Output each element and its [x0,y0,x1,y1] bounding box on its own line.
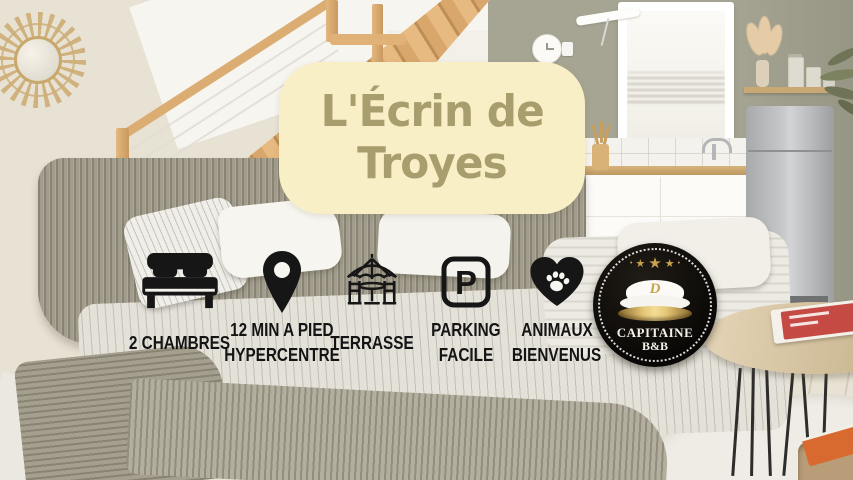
badge-monogram: D [593,281,717,298]
kitchen-window [618,2,734,148]
star-dot: • [678,259,680,269]
wall-clock [532,34,562,64]
title-line-1: L'Écrin de [320,86,543,138]
captain-hat-band [618,306,692,321]
feature-text: FACILE [439,343,493,368]
mirror-glass [14,36,62,84]
listing-cover: L'Écrin de Troyes 2 CHAMBRES [0,0,853,480]
title-line-2: Troyes [357,138,507,190]
parking-icon: P [441,250,491,314]
badge-brand-suffix: B&B [593,339,717,354]
flower-vase [756,60,769,87]
kitchen-utensil [600,121,603,143]
clock-hand [546,48,554,50]
map-pin-icon [262,250,302,314]
star-icon: ★ [648,256,661,272]
feature-text: ANIMAUX [521,318,592,343]
rattan-mirror [0,12,86,108]
feature-text: BIENVENUS [512,343,601,368]
star-icon: ★ [635,257,645,271]
stair-post [372,4,383,62]
capitaine-bb-badge: • ★ ★ ★ • D CAPITAINE B&B [593,243,717,367]
window-view [627,72,725,103]
utensil-pot [592,144,609,170]
title-plate: L'Écrin de Troyes [279,62,585,214]
stair-rail-top [330,34,406,45]
paw-heart-icon [529,250,585,314]
refrigerator-seam [748,150,832,152]
bed-icon [141,250,219,314]
star-dot: • [630,259,632,269]
glass-jar [806,67,821,89]
parking-letter: P [455,264,477,301]
faucet [702,138,732,153]
window-glass [627,11,725,139]
badge-stars: • ★ ★ ★ • [593,256,717,272]
terrace-icon [340,250,404,314]
faucet [712,144,716,160]
star-icon: ★ [665,257,675,271]
glass-jar [788,57,804,89]
light-switch [562,42,573,56]
